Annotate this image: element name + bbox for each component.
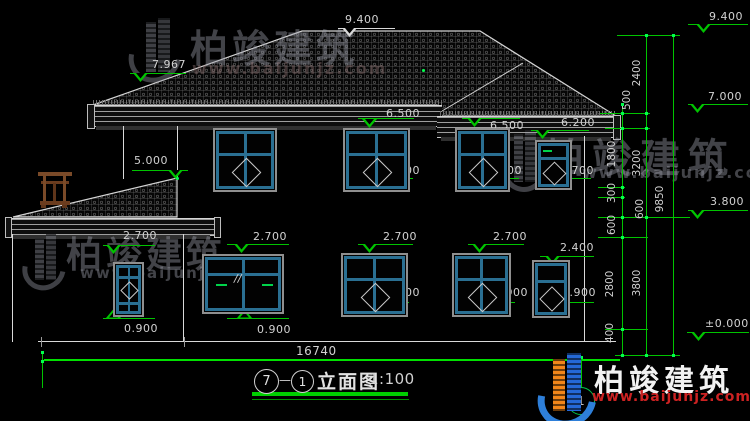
eave-end-cap — [87, 104, 95, 129]
window-diamond-glass — [361, 282, 391, 312]
title-dash: — — [279, 373, 292, 387]
elevation-label: 2.400 — [560, 241, 594, 254]
elevation-label: 3.800 — [710, 195, 744, 208]
drawing-line — [183, 234, 184, 341]
chain-dimension-label: 500 — [621, 90, 633, 110]
elevation-label: 2.700 — [253, 230, 287, 243]
window-t2d — [455, 128, 510, 192]
green-dot — [176, 177, 179, 180]
elevation-marker-triangle — [690, 104, 705, 113]
dimension-tick — [621, 328, 624, 331]
chain-dimension-label: 600 — [606, 215, 618, 235]
cad-elevation-drawing: 柏竣建筑 www.baijunjz.com 柏竣建筑 www.baijunjz.… — [0, 0, 750, 421]
elevation-label: 6.200 — [561, 116, 595, 129]
elevation-label: 9.400 — [345, 13, 379, 26]
elevation-label: 0.900 — [257, 323, 291, 336]
elevation-marker-triangle — [690, 210, 705, 219]
elevation-label: 2.700 — [123, 229, 157, 242]
window-t2d — [341, 253, 408, 317]
dimension-tick — [645, 216, 648, 219]
elevation-marker-triangle — [467, 118, 482, 127]
elevation-marker-triangle — [362, 119, 377, 128]
drawing-line — [44, 359, 620, 361]
elevation-label: 9.400 — [709, 10, 743, 23]
axis-bubble-label: 7 — [262, 374, 270, 389]
dimension-tick — [621, 186, 624, 189]
dimension-tick — [41, 360, 44, 363]
elevation-marker-triangle — [234, 244, 249, 253]
dimension-tick — [672, 34, 675, 37]
chain-dimension-label: 3200 — [631, 150, 643, 177]
window-diamond-glass — [231, 157, 261, 187]
elevation-marker-triangle — [362, 244, 377, 253]
elevation-marker-triangle — [342, 28, 357, 37]
dimension-tick — [621, 127, 624, 130]
window-diamond-glass — [542, 161, 566, 185]
chain-dimension-label: 300 — [606, 183, 618, 203]
elevation-label: 5.000 — [134, 154, 168, 167]
drawing-line — [12, 234, 13, 342]
axis-bubble-1: 1 — [291, 370, 314, 393]
window-handle-dash — [216, 284, 227, 286]
chain-dimension-label: 9850 — [654, 186, 666, 213]
elevation-label: 6.500 — [386, 107, 420, 120]
drawing-line — [41, 337, 42, 347]
elevation-marker-triangle — [106, 245, 121, 254]
drawing-line — [622, 104, 623, 356]
window-diamond-glass — [468, 282, 498, 312]
watermark-url-text: www.baijunjz.com — [592, 389, 750, 405]
window-diamond-glass — [469, 157, 499, 187]
drawing-line — [38, 341, 616, 342]
elevation-marker-triangle — [691, 332, 706, 341]
axis-bubble-label: 1 — [299, 375, 307, 389]
hatch-glyph: // — [234, 272, 241, 285]
drawing-line — [673, 35, 674, 356]
elevation-marker-line — [103, 318, 155, 319]
chain-dimension-label: 2800 — [604, 271, 616, 298]
chain-dimension-label: 1800 — [606, 141, 618, 168]
drawing-line — [252, 399, 409, 400]
window-narrow — [113, 262, 144, 317]
dimension-tick — [621, 112, 624, 115]
elevation-label: 7.967 — [152, 58, 186, 71]
dimension-tick — [645, 112, 648, 115]
watermark-url-text: www.baijunjz.com — [192, 59, 387, 78]
drawing-scale: 1:100 — [369, 370, 415, 388]
window-t2d — [213, 128, 277, 192]
drawing-line — [123, 126, 124, 179]
window-t2d — [452, 253, 511, 317]
elevation-marker-triangle — [535, 130, 550, 139]
chain-dimension-label: 3800 — [631, 270, 643, 297]
elevation-marker-triangle — [133, 73, 148, 82]
chain-dimension-label: 400 — [604, 323, 616, 343]
window-small — [535, 140, 572, 190]
dimension-tick — [621, 236, 624, 239]
drawing-line — [646, 35, 647, 356]
drawing-line — [605, 128, 650, 129]
drawing-line — [600, 113, 650, 114]
window-small — [532, 260, 570, 318]
elevation-label: 2.700 — [493, 230, 527, 243]
window-diamond-glass — [363, 157, 393, 187]
elevation-label: 2.700 — [383, 230, 417, 243]
window-handle-dash — [262, 284, 273, 286]
porch-roof — [13, 178, 177, 217]
drawing-line — [617, 35, 680, 36]
window-diamond-glass — [120, 281, 138, 299]
drawing-line — [42, 352, 43, 388]
axis-bubble-7: 7 — [254, 369, 279, 394]
window-diamond-glass — [539, 286, 564, 311]
elevation-label: ±0.000 — [705, 317, 749, 330]
elevation-marker-triangle — [696, 24, 711, 33]
drawing-line — [184, 337, 185, 347]
elevation-label: 0.900 — [124, 322, 158, 335]
window-t2d — [343, 128, 410, 192]
brand-logo-icon — [22, 234, 64, 288]
dimension-tick — [621, 103, 624, 106]
dimension-tick — [621, 196, 624, 199]
elevation-label: 7.000 — [708, 90, 742, 103]
dimension-tick — [645, 34, 648, 37]
dimension-tick — [41, 351, 44, 354]
elevation-marker-triangle — [472, 244, 487, 253]
dimension-tick — [621, 216, 624, 219]
eave-end-cap — [5, 217, 12, 238]
green-dot — [422, 69, 425, 72]
elevation-marker-line — [227, 318, 289, 319]
dimension-tick — [645, 127, 648, 130]
total-dimension-label: 16740 — [296, 344, 337, 358]
window-handle-dash — [543, 150, 552, 152]
chain-dimension-label: 2400 — [631, 60, 643, 87]
brand-logo-color-icon — [537, 353, 593, 421]
